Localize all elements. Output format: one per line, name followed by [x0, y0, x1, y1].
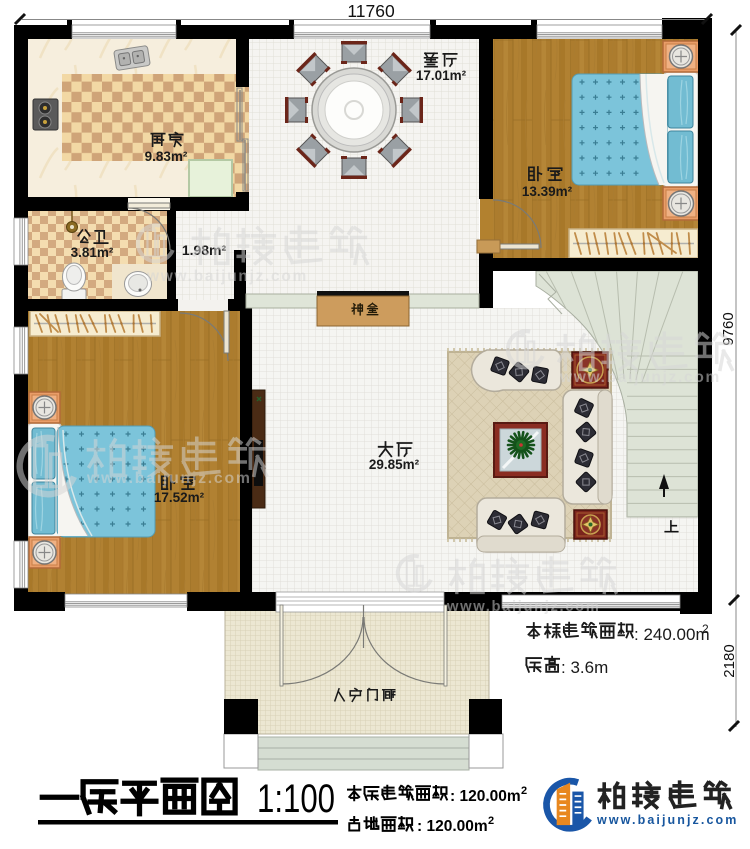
svg-text:29.85m²: 29.85m² [369, 457, 420, 472]
svg-text:2: 2 [702, 622, 709, 636]
svg-text:www.baijunjz.com: www.baijunjz.com [146, 268, 308, 285]
svg-text:17.01m²: 17.01m² [416, 68, 467, 83]
svg-text:2: 2 [488, 815, 494, 827]
svg-text:: 120.00m: : 120.00m [417, 818, 488, 835]
svg-text:: 240.00m: : 240.00m [634, 625, 710, 644]
svg-text:9.83m²: 9.83m² [145, 149, 188, 164]
svg-text:2: 2 [521, 785, 527, 797]
svg-text:: 3.6m: : 3.6m [561, 658, 608, 677]
svg-text:www.baijunjz.com: www.baijunjz.com [446, 599, 601, 615]
svg-text:11760: 11760 [347, 1, 395, 21]
svg-text:www.baijunjz.com: www.baijunjz.com [596, 813, 738, 827]
svg-text:17.52m²: 17.52m² [154, 490, 205, 505]
svg-text:1:100: 1:100 [257, 777, 335, 821]
svg-text:3.81m²: 3.81m² [71, 245, 114, 260]
svg-text:2180: 2180 [721, 644, 738, 677]
svg-text:9760: 9760 [720, 312, 737, 345]
svg-text:www.baijunjz.com: www.baijunjz.com [86, 470, 252, 487]
svg-text:13.39m²: 13.39m² [522, 184, 573, 199]
svg-text:www.baijunjz.com: www.baijunjz.com [559, 369, 721, 386]
svg-text:: 120.00m: : 120.00m [450, 788, 521, 805]
